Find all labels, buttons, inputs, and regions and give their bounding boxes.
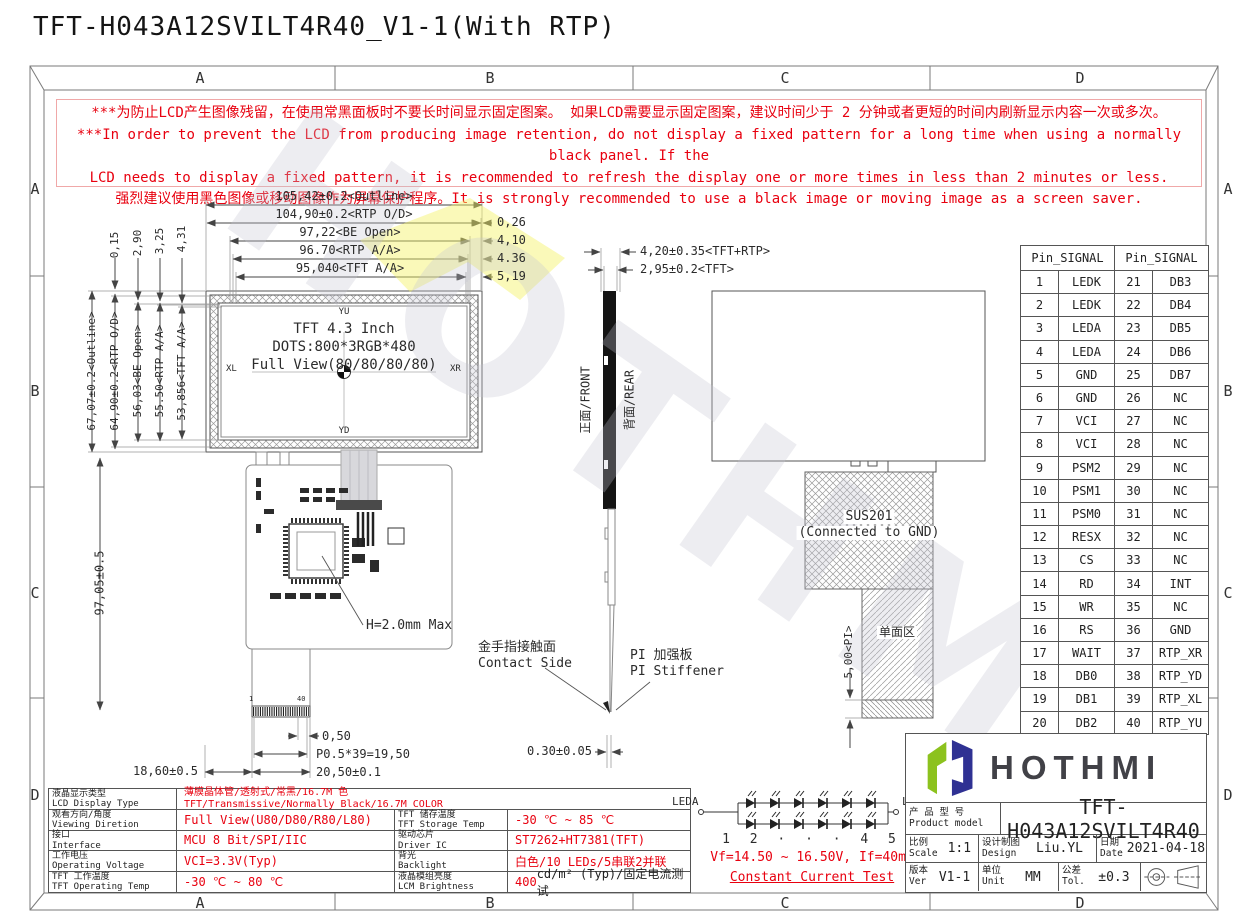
dim-pi-height: 5,00<PI> <box>843 626 855 679</box>
pin-signal-cell: RTP_XL <box>1153 688 1208 710</box>
single-side-area-label: 单面区 <box>877 626 917 639</box>
dim-pin-pitch: P0.5*39=19,50 <box>316 748 410 761</box>
pin-number-cell: 35 <box>1115 596 1152 618</box>
dim-offset-4: 4,31 <box>176 226 188 253</box>
pin-signal-cell: DB6 <box>1153 341 1208 363</box>
pin-signal-cell: DB0 <box>1059 665 1114 687</box>
pi-stiffener-label-en: PI Stiffener <box>630 665 724 679</box>
dim-tft-thickness: 2,95±0.2<TFT> <box>640 263 734 276</box>
pin-signal-cell: GND <box>1153 619 1208 641</box>
pin-number-cell: 6 <box>1021 387 1058 409</box>
designer-name: Liu.YL <box>1023 841 1096 856</box>
pin-number-cell: 15 <box>1021 596 1058 618</box>
pin-signal-cell: GND <box>1059 364 1114 386</box>
pin-number-cell: 26 <box>1115 387 1152 409</box>
pin-first-label: 1 <box>249 696 253 704</box>
date-value: 2021-04-18 <box>1126 841 1206 856</box>
pin-number-cell: 11 <box>1021 503 1058 525</box>
spec-value-lcm-brightness: 400 cd/m² (Typ)/固定电流测试 <box>508 872 690 892</box>
led-index-row: 1 2 · · · 4 5 <box>722 833 902 847</box>
pin-signal-cell: VCI <box>1059 433 1114 455</box>
brand-logo: HOTHMI <box>906 734 1206 803</box>
dim-tft-aa-width: 95,040<TFT A/A> <box>296 262 404 275</box>
datasheet-page: TFT-H043A12SVILT4R40_V1-1(With RTP) <box>0 0 1250 922</box>
pin-signal-cell: RESX <box>1059 526 1114 548</box>
pin-signal-cell: RTP_YU <box>1153 712 1208 734</box>
dim-gap-1: 0,26 <box>497 216 526 229</box>
dim-rtp-od-width: 104,90±0.2<RTP O/D> <box>275 208 412 221</box>
pin-signal-cell: LEDA <box>1059 341 1114 363</box>
dim-connector-width: 20,50±0.1 <box>316 766 381 779</box>
contact-side-label-zh: 金手指接触面 <box>478 641 556 655</box>
spec-table: 液晶显示类型 LCD Display Type 薄膜晶体管/透射式/常黑/16.… <box>48 788 691 893</box>
display-dots-label: DOTS:800*3RGB*480 <box>272 340 415 355</box>
dim-tft-aa-height: 53,856<TFT A/A> <box>176 321 188 420</box>
dim-outline-height: 67,07±0.2<Outline> <box>86 311 98 430</box>
pin-signal-cell: DB3 <box>1153 271 1208 293</box>
dim-gap-3: 4.36 <box>497 252 526 265</box>
dim-outline-width: 105,42±0.2<Outline> <box>275 190 412 203</box>
pin-number-cell: 9 <box>1021 457 1058 479</box>
display-size-label: TFT 4.3 Inch <box>293 322 394 337</box>
pin-number-cell: 27 <box>1115 410 1152 432</box>
pin-signal-cell: NC <box>1153 433 1208 455</box>
pin-signal-cell: DB4 <box>1153 294 1208 316</box>
dim-pin-margin: 0,50 <box>322 730 351 743</box>
spec-value-storage-temp: -30 ℃ ~ 85 ℃ <box>508 810 690 830</box>
pin-number-cell: 29 <box>1115 457 1152 479</box>
pin-number-cell: 34 <box>1115 572 1152 594</box>
spec-label-lcm-brightness: 液晶模组亮度LCM Brightness <box>395 872 507 892</box>
spec-value-interface: MCU 8 Bit/SPI/IIC <box>177 831 394 851</box>
dim-total-thickness: 4,20±0.35<TFT+RTP> <box>640 245 770 258</box>
spec-value-operating-voltage: VCI=3.3V(Typ) <box>177 851 394 871</box>
pin-number-cell: 24 <box>1115 341 1152 363</box>
dim-tail-offset: 18,60±0.5 <box>122 765 198 778</box>
rear-side-label: 背面/REAR <box>623 370 636 430</box>
led-anode-label: LEDA <box>672 796 699 808</box>
pin-signal-cell: NC <box>1153 596 1208 618</box>
pin-number-cell: 18 <box>1021 665 1058 687</box>
pin-number-cell: 22 <box>1115 294 1152 316</box>
pin-signal-cell: PSM2 <box>1059 457 1114 479</box>
pin-signal-cell: WAIT <box>1059 642 1114 664</box>
design-label: 设计制图Design <box>979 838 1023 860</box>
contact-side-label-en: Contact Side <box>478 657 572 671</box>
pin-number-cell: 39 <box>1115 688 1152 710</box>
pin-number-cell: 19 <box>1021 688 1058 710</box>
dim-total-height: 97,05±0.5 <box>93 550 106 615</box>
version-value: V1-1 <box>931 870 978 885</box>
pin-number-cell: 32 <box>1115 526 1152 548</box>
pin-signal-cell: RS <box>1059 619 1114 641</box>
pin-number-cell: 25 <box>1115 364 1152 386</box>
pin-number-cell: 37 <box>1115 642 1152 664</box>
pin-signal-cell: INT <box>1153 572 1208 594</box>
spec-value-operating-temp: -30 ℃ ~ 80 ℃ <box>177 872 394 892</box>
pin-signal-cell: NC <box>1153 410 1208 432</box>
spec-label-display-type: 液晶显示类型 LCD Display Type <box>49 789 176 809</box>
pin-last-label: 40 <box>297 696 305 704</box>
dim-gap-4: 5,19 <box>497 270 526 283</box>
spec-label-storage-temp: TFT 储存温度TFT Storage Temp <box>395 810 507 830</box>
pin-number-cell: 30 <box>1115 480 1152 502</box>
pin-number-cell: 40 <box>1115 712 1152 734</box>
corner-label-xl: XL <box>226 365 237 375</box>
pin-signal-cell: RD <box>1059 572 1114 594</box>
pin-number-cell: 7 <box>1021 410 1058 432</box>
spec-label-backlight: 背光Backlight <box>395 851 507 871</box>
front-side-label: 正面/FRONT <box>579 366 592 433</box>
display-view-label: Full View(80/80/80/80) <box>251 358 436 373</box>
brand-name: HOTHMI <box>990 749 1162 787</box>
pin-number-cell: 21 <box>1115 271 1152 293</box>
pin-number-cell: 2 <box>1021 294 1058 316</box>
pin-number-cell: 14 <box>1021 572 1058 594</box>
page-title: TFT-H043A12SVILT4R40_V1-1(With RTP) <box>33 12 616 42</box>
spec-label-interface: 接口Interface <box>49 831 176 851</box>
pin-signal-cell: NC <box>1153 526 1208 548</box>
pin-signal-cell: PSM0 <box>1059 503 1114 525</box>
pin-signal-cell: VCI <box>1059 410 1114 432</box>
pin-signal-cell: DB2 <box>1059 712 1114 734</box>
pin-number-cell: 36 <box>1115 619 1152 641</box>
pin-number-cell: 13 <box>1021 549 1058 571</box>
dim-rtp-aa-width: 96.70<RTP A/A> <box>299 244 400 257</box>
pin-table-header-right: Pin_SIGNAL <box>1115 246 1208 270</box>
pin-signal-cell: WR <box>1059 596 1114 618</box>
dim-fpc-thickness: 0.30±0.05 <box>512 745 592 758</box>
led-spec-label: Vf=14.50 ~ 16.50V, If=40mA <box>710 851 914 865</box>
spec-value-display-type: 薄膜晶体管/透射式/常黑/16.7M 色 TFT/Transmissive/No… <box>177 789 690 809</box>
pin-number-cell: 1 <box>1021 271 1058 293</box>
pin-signal-cell: DB7 <box>1153 364 1208 386</box>
pin-signal-cell: DB1 <box>1059 688 1114 710</box>
scale-design-date-row: 比例Scale 1:1 设计制图Design Liu.YL 日期Date 202… <box>906 835 1206 863</box>
spec-value-driver-ic: ST7262+HT7381(TFT) <box>508 831 690 851</box>
spec-label-viewing-direction: 观看方向/角度Viewing Diretion <box>49 810 176 830</box>
pin-signal-cell: LEDK <box>1059 271 1114 293</box>
product-model-row: 产 品 型 号 Product model TFT-H043A12SVILT4R… <box>906 803 1206 835</box>
pi-stiffener-label-zh: PI 加强板 <box>630 649 692 663</box>
pin-number-cell: 33 <box>1115 549 1152 571</box>
sus-plate-label: SUS201 <box>844 510 895 524</box>
corner-label-yu: YU <box>339 308 350 318</box>
hothmi-logo-icon <box>926 740 976 796</box>
pin-number-cell: 38 <box>1115 665 1152 687</box>
dim-rtp-aa-height: 55.50<RTP A/A> <box>154 325 166 418</box>
dim-offset-1: 0,15 <box>109 232 121 259</box>
dim-offset-3: 3,25 <box>154 228 166 255</box>
spec-label-operating-temp: TFT 工作温度TFT Operating Temp <box>49 872 176 892</box>
pin-signal-cell: RTP_XR <box>1153 642 1208 664</box>
led-test-note: Constant Current Test <box>730 871 894 885</box>
sus-gnd-label: (Connected to GND) <box>797 526 942 540</box>
dim-offset-2: 2,90 <box>132 230 144 257</box>
pin-signal-cell: CS <box>1059 549 1114 571</box>
product-model-label: 产 品 型 号 Product model <box>906 808 986 830</box>
pin-number-cell: 10 <box>1021 480 1058 502</box>
pin-number-cell: 20 <box>1021 712 1058 734</box>
dim-be-open-height: 56,03<BE Open> <box>132 325 144 418</box>
pin-signal-cell: NC <box>1153 549 1208 571</box>
pin-number-cell: 17 <box>1021 642 1058 664</box>
component-height-label: H=2.0mm Max <box>366 619 452 633</box>
pin-number-cell: 12 <box>1021 526 1058 548</box>
pin-number-cell: 8 <box>1021 433 1058 455</box>
version-unit-tol-row: 版本Ver V1-1 单位Unit MM 公差Tol. ±0.3 <box>906 863 1206 891</box>
unit-value: MM <box>1008 870 1058 885</box>
pin-signal-cell: NC <box>1153 457 1208 479</box>
pin-number-cell: 3 <box>1021 317 1058 339</box>
dim-be-open-width: 97,22<BE Open> <box>299 226 400 239</box>
pin-number-cell: 4 <box>1021 341 1058 363</box>
pin-signal-cell: LEDK <box>1059 294 1114 316</box>
dim-rtp-od-height: 64,90±0.2<RTP O/D> <box>109 311 121 430</box>
unit-label: 单位Unit <box>979 866 1008 888</box>
projection-symbol-icon <box>1143 864 1205 890</box>
tolerance-value: ±0.3 <box>1088 870 1140 885</box>
pin-number-cell: 16 <box>1021 619 1058 641</box>
dim-gap-2: 4,10 <box>497 234 526 247</box>
pin-signal-cell: GND <box>1059 387 1114 409</box>
spec-value-viewing-direction: Full View(U80/D80/R80/L80) <box>177 810 394 830</box>
date-label: 日期Date <box>1097 838 1126 860</box>
scale-value: 1:1 <box>941 841 978 856</box>
pin-signal-table: Pin_SIGNAL Pin_SIGNAL 1LEDK21DB32LEDK22D… <box>1020 245 1209 735</box>
spec-label-driver-ic: 驱动芯片Driver IC <box>395 831 507 851</box>
title-block: HOTHMI 产 品 型 号 Product model TFT-H043A12… <box>905 733 1207 893</box>
pin-signal-cell: NC <box>1153 387 1208 409</box>
pin-number-cell: 5 <box>1021 364 1058 386</box>
version-label: 版本Ver <box>906 866 931 888</box>
pin-signal-cell: PSM1 <box>1059 480 1114 502</box>
spec-label-operating-voltage: 工作电压Operating Voltage <box>49 851 176 871</box>
tolerance-label: 公差Tol. <box>1059 866 1088 888</box>
pin-signal-cell: LEDA <box>1059 317 1114 339</box>
corner-label-xr: XR <box>450 365 461 375</box>
pin-signal-cell: NC <box>1153 480 1208 502</box>
pin-number-cell: 28 <box>1115 433 1152 455</box>
scale-label: 比例Scale <box>906 838 941 860</box>
pin-signal-cell: RTP_YD <box>1153 665 1208 687</box>
pin-number-cell: 31 <box>1115 503 1152 525</box>
corner-label-yd: YD <box>339 427 350 437</box>
pin-signal-cell: NC <box>1153 503 1208 525</box>
pin-table-header-left: Pin_SIGNAL <box>1021 246 1114 270</box>
pin-signal-cell: DB5 <box>1153 317 1208 339</box>
pin-number-cell: 23 <box>1115 317 1152 339</box>
